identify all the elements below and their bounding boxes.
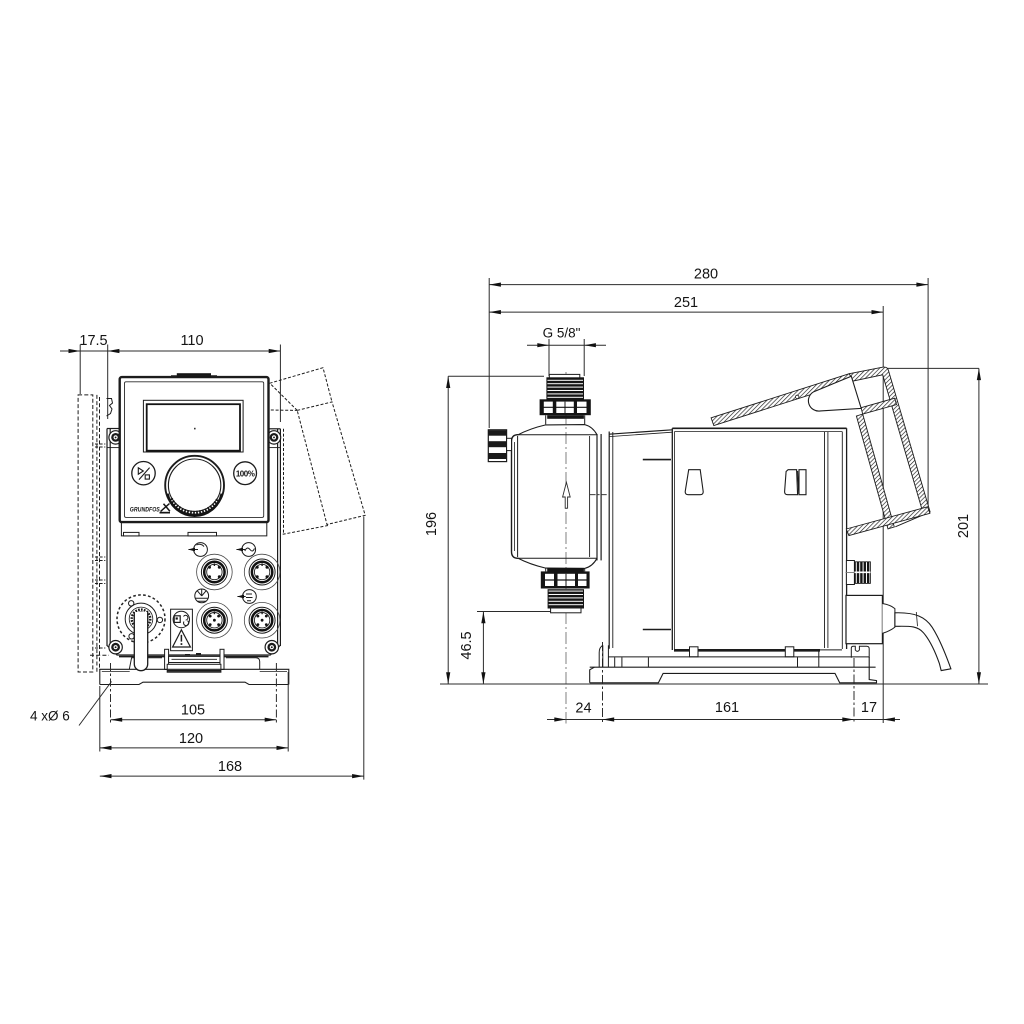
svg-text:24: 24 xyxy=(575,701,591,717)
svg-text:120: 120 xyxy=(179,731,203,747)
svg-text:4 xØ 6: 4 xØ 6 xyxy=(30,709,70,724)
svg-text:196: 196 xyxy=(424,512,440,536)
svg-text:161: 161 xyxy=(715,700,739,716)
svg-text:G 5/8": G 5/8" xyxy=(543,326,581,341)
svg-text:105: 105 xyxy=(181,703,205,719)
svg-text:17.5: 17.5 xyxy=(79,333,107,349)
svg-text:110: 110 xyxy=(180,333,203,349)
svg-text:251: 251 xyxy=(674,295,698,311)
svg-text:280: 280 xyxy=(694,267,718,283)
svg-text:201: 201 xyxy=(956,514,972,538)
svg-text:46.5: 46.5 xyxy=(459,631,475,659)
svg-text:168: 168 xyxy=(218,759,242,775)
svg-text:GRUNDFOS: GRUNDFOS xyxy=(130,506,161,513)
svg-text:100%: 100% xyxy=(236,469,255,478)
svg-text:17: 17 xyxy=(861,700,877,716)
